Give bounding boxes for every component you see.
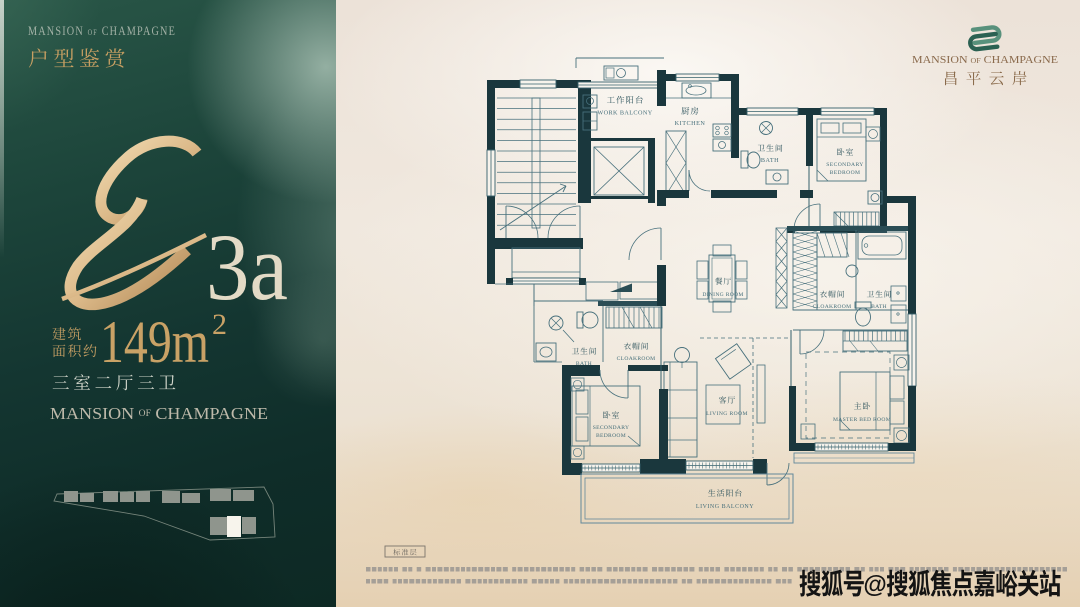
svg-text:DINING ROOM: DINING ROOM — [702, 292, 743, 298]
svg-text:SECONDARY: SECONDARY — [593, 425, 630, 431]
svg-text:KITCHEN: KITCHEN — [675, 120, 706, 127]
svg-text:BATH: BATH — [576, 361, 592, 367]
svg-text:BEDROOM: BEDROOM — [830, 170, 861, 176]
svg-text:MANSION OF CHAMPAGNE: MANSION OF CHAMPAGNE — [50, 404, 268, 423]
svg-text:SECONDARY: SECONDARY — [826, 162, 863, 168]
svg-text:3a: 3a — [206, 214, 288, 320]
svg-text:CLOAKROOM: CLOAKROOM — [617, 356, 656, 362]
svg-text:MASTER BED ROOM: MASTER BED ROOM — [833, 417, 891, 423]
svg-text:MANSION OF CHAMPAGNE: MANSION OF CHAMPAGNE — [912, 55, 1058, 66]
svg-text:BEDROOM: BEDROOM — [596, 433, 626, 439]
svg-text:LIVING BALCONY: LIVING BALCONY — [696, 504, 754, 510]
svg-text:BATH: BATH — [871, 304, 887, 310]
svg-text:BATH: BATH — [761, 157, 779, 164]
svg-text:LIVING ROOM: LIVING ROOM — [706, 411, 748, 417]
svg-text:WORK BALCONY: WORK BALCONY — [597, 110, 652, 117]
svg-text:@: @ — [863, 572, 886, 599]
svg-text:CLOAKROOM: CLOAKROOM — [813, 304, 852, 310]
svg-text:MANSION OF CHAMPAGNE: MANSION OF CHAMPAGNE — [28, 23, 176, 38]
svg-text:2: 2 — [212, 308, 227, 341]
svg-text:149m: 149m — [100, 309, 209, 375]
